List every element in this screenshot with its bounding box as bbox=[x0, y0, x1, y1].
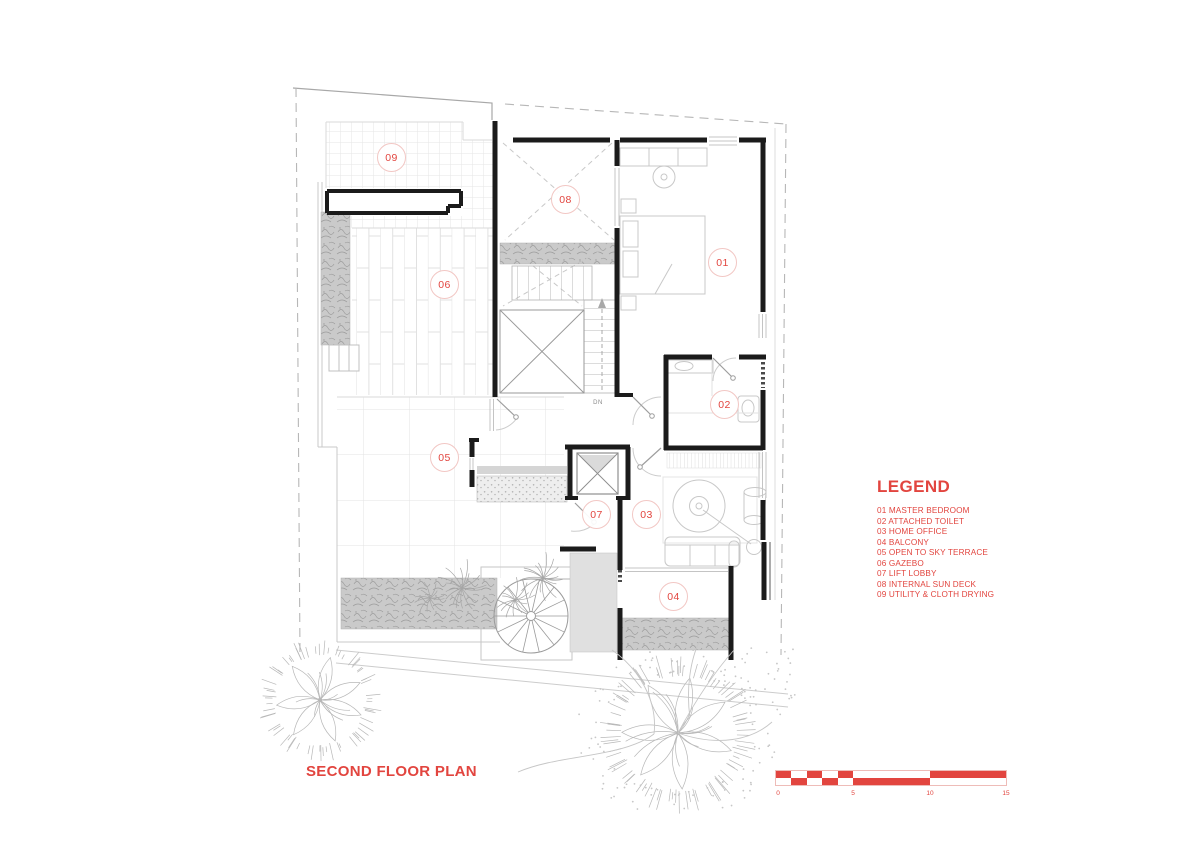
room-label-01: 01 bbox=[708, 248, 737, 277]
legend-item: 09 UTILITY & CLOTH DRYING bbox=[877, 590, 994, 601]
legend: LEGEND 01 MASTER BEDROOM 02 ATTACHED TOI… bbox=[877, 477, 994, 601]
legend-heading: LEGEND bbox=[877, 477, 994, 497]
legend-list: 01 MASTER BEDROOM 02 ATTACHED TOILET 03 … bbox=[877, 506, 994, 601]
room-label-08: 08 bbox=[551, 185, 580, 214]
floor-plan-page: { "title": "SECOND FLOOR PLAN", "legend"… bbox=[0, 0, 1200, 849]
room-label-07: 07 bbox=[582, 500, 611, 529]
legend-item: 01 MASTER BEDROOM bbox=[877, 506, 994, 517]
room-label-02: 02 bbox=[710, 390, 739, 419]
legend-item: 05 OPEN TO SKY TERRACE bbox=[877, 548, 994, 559]
room-label-03: 03 bbox=[632, 500, 661, 529]
page-title: SECOND FLOOR PLAN bbox=[306, 763, 477, 780]
legend-item: 06 GAZEBO bbox=[877, 559, 994, 570]
scale-label-15: 15 bbox=[1002, 790, 1009, 797]
room-label-04: 04 bbox=[659, 582, 688, 611]
legend-item: 08 INTERNAL SUN DECK bbox=[877, 580, 994, 591]
legend-item: 03 HOME OFFICE bbox=[877, 527, 994, 538]
service-shaft bbox=[570, 553, 617, 652]
staircase bbox=[500, 143, 619, 393]
scale-label-5: 5 bbox=[851, 790, 855, 797]
stair-down-label: DN bbox=[588, 400, 608, 406]
floor-plan-drawing bbox=[0, 0, 1200, 849]
plant-glyph bbox=[497, 577, 535, 617]
legend-item: 02 ATTACHED TOILET bbox=[877, 517, 994, 528]
wardrobe-hatch bbox=[667, 453, 761, 468]
scale-label-10: 10 bbox=[926, 790, 933, 797]
tree-glyph bbox=[260, 640, 381, 761]
room-label-06: 06 bbox=[430, 270, 459, 299]
room-label-09: 09 bbox=[377, 143, 406, 172]
legend-item: 04 BALCONY bbox=[877, 538, 994, 549]
scale-bar: 0 5 10 15 bbox=[775, 770, 1007, 786]
lift-shaft bbox=[577, 453, 618, 494]
scale-label-0: 0 bbox=[776, 790, 780, 797]
tree-glyph bbox=[600, 656, 756, 814]
room-label-05: 05 bbox=[430, 443, 459, 472]
spiral-staircase bbox=[494, 579, 572, 653]
legend-item: 07 LIFT LOBBY bbox=[877, 569, 994, 580]
